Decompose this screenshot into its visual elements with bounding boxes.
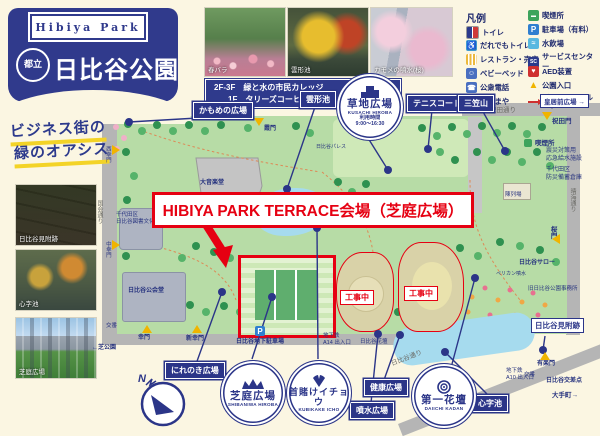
label-harumi-dori: 晴海通り bbox=[568, 188, 577, 212]
label-koban-east: 交番 bbox=[524, 372, 535, 379]
label-kitsuenjo: 喫煙所 bbox=[535, 140, 555, 148]
circle-shibaniwa-hiroba: 芝庭広場 SHIBANIWA HIROBA bbox=[220, 360, 286, 426]
circle-kusachi-hiroba: 草地広場 KUSACHI HIROBA 利用時間 9:00～16:30 bbox=[336, 73, 404, 141]
label-kokkai-dori: 国会通り bbox=[95, 200, 104, 224]
nishisaiwaimon-gate-icon bbox=[112, 145, 120, 155]
drinking-water-icon: ≈ bbox=[528, 38, 539, 49]
parking-icon: P bbox=[528, 24, 539, 35]
toilet-icon bbox=[466, 26, 479, 39]
shinsaiwaimon-gate-icon bbox=[192, 325, 202, 333]
photo-shibaniwa-hiroba: 芝庭広場 bbox=[16, 318, 96, 378]
circle-daiichi-kadan: 第一花壇 DAIICHI KADAN bbox=[411, 363, 477, 429]
label-hibiya-kosaten: 日比谷交差点 bbox=[546, 378, 582, 386]
circle-kubikake-icho: 首賭けイチョウ KUBIKAKE ICHO bbox=[286, 360, 352, 426]
label-kenko-hiroba: 健康広場 bbox=[364, 379, 408, 396]
compass-n: N bbox=[138, 373, 147, 385]
legend-smoking: ▬喫煙所 bbox=[528, 10, 564, 21]
label-kumogata-ike: 雲形池 bbox=[300, 91, 336, 108]
kokaido-building bbox=[122, 272, 186, 322]
label-kyu-jimusho: 旧日比谷公園事務所 bbox=[528, 286, 578, 293]
harumi-dori-road bbox=[566, 103, 580, 335]
label-chinretsujo: 陳列場 bbox=[505, 192, 522, 199]
toritsu-seal: 都立 bbox=[16, 48, 50, 82]
photo-spring-roses: 春バラ bbox=[205, 8, 285, 76]
event-title: HIBIYA PARK TERRACE会場（芝庭広場） bbox=[163, 199, 464, 221]
label-mitsuke-ato: 日比谷見附跡 bbox=[531, 318, 584, 333]
label-nirenoki-hiroba: にれのき広場 bbox=[165, 362, 225, 379]
label-mikasa-yama: 三笠山 bbox=[458, 95, 494, 112]
label-yurakumon: 有楽門 bbox=[537, 361, 555, 369]
sakuramon-gate-icon bbox=[552, 234, 560, 244]
kasumimon-gate-icon bbox=[254, 118, 264, 126]
ginkgo-leaf-icon bbox=[311, 374, 327, 387]
photo-kamome-fountain: カモメの噴水(桜) bbox=[371, 8, 452, 76]
legend-parking: P駐車場（有料） bbox=[528, 24, 593, 35]
public-phone-icon: ☎ bbox=[466, 82, 477, 93]
photo-kumogata-pond: 雲形池 bbox=[288, 8, 368, 76]
construction-label-2: 工事中 bbox=[404, 286, 438, 301]
park-title: 日比谷公園 bbox=[54, 50, 179, 85]
label-kokyo-hiroba: 皇居前広場 → bbox=[540, 94, 589, 108]
crown-icon bbox=[241, 378, 265, 390]
photo-mitsuke-ruins: 日比谷見附跡 bbox=[16, 185, 96, 245]
label-nishisaiwaimon: 西幸門 bbox=[104, 146, 111, 163]
legend-entrance: ▲公園入口 bbox=[528, 80, 571, 91]
label-funsui-hiroba: 噴水広場 bbox=[350, 402, 394, 419]
slogan-line2: 緑のオアシス bbox=[13, 138, 110, 169]
ribbon-banner: Hibiya Park bbox=[30, 14, 146, 40]
legend-aed: ♥AED装置 bbox=[528, 66, 572, 77]
aed-icon: ♥ bbox=[528, 66, 539, 77]
restaurant-icon bbox=[466, 54, 477, 65]
label-hibiya-saroh: 日比谷サロー bbox=[519, 260, 555, 268]
legend-phone: ☎公衆電話 bbox=[466, 82, 509, 93]
compass-icon bbox=[142, 379, 184, 425]
label-shibakoen: ←芝公園 bbox=[92, 345, 116, 353]
label-hibiya-kadan-shop: 日比谷花壇 bbox=[360, 339, 388, 346]
accessible-toilet-icon: ♿ bbox=[466, 40, 477, 51]
lawn-court bbox=[255, 270, 317, 320]
label-pelican-fountain: ペリカン噴水 bbox=[496, 271, 526, 277]
label-shinji-ike: 心字池 bbox=[472, 395, 508, 412]
rose-icon bbox=[437, 380, 451, 394]
smoking-spot-icon bbox=[524, 139, 532, 147]
legend-toilet: トイレ bbox=[466, 26, 504, 39]
label-saiwaimon: 幸門 bbox=[138, 335, 150, 343]
barrier-free-icon bbox=[528, 101, 539, 103]
yurakumon-gate-icon bbox=[540, 352, 550, 360]
label-a14: 地下鉄A14 出入口 bbox=[323, 333, 351, 347]
baby-bed-icon: ☺ bbox=[466, 68, 477, 79]
legend-accessible-toilet: ♿だれでもトイレ bbox=[466, 40, 531, 51]
label-hibiya-palace: 日比谷パレス bbox=[316, 144, 346, 150]
building-icon bbox=[361, 86, 379, 98]
nakasaiwaimon-gate-icon bbox=[112, 240, 120, 250]
event-title-box: HIBIYA PARK TERRACE会場（芝庭広場） bbox=[152, 192, 474, 228]
label-chika-parking: 日比谷地下駐車場 bbox=[236, 339, 284, 347]
label-kasumimon: 霞門 bbox=[264, 126, 276, 134]
legend-water: ≈水飲場 bbox=[528, 38, 564, 49]
park-entrance-icon: ▲ bbox=[528, 80, 539, 91]
legend-baby-bed: ☺ベビーベッド bbox=[466, 68, 524, 79]
label-nakasaiwaimon: 中幸門 bbox=[104, 241, 111, 258]
photo-shinji-pond: 心字池 bbox=[16, 250, 96, 310]
label-shinsai: 震災対策用応急給水施設 bbox=[546, 148, 582, 163]
label-daionogakudo: 大音楽堂 bbox=[200, 180, 224, 188]
legend-title: 凡例 bbox=[466, 10, 486, 25]
label-kokaido: 日比谷公会堂 bbox=[128, 288, 164, 296]
label-otemachi: 大手町→ bbox=[552, 392, 578, 400]
shibaniwa-field-outline bbox=[238, 255, 336, 338]
saiwaimon-gate-icon bbox=[142, 325, 152, 333]
construction-label-1: 工事中 bbox=[340, 290, 374, 305]
iwaidamon-gate-icon bbox=[542, 112, 552, 120]
label-kamome-hiroba: かもめの広場 bbox=[193, 102, 253, 119]
label-shinsaiwaimon: 新幸門 bbox=[186, 336, 204, 344]
smoking-icon: ▬ bbox=[528, 10, 539, 21]
label-bosai: 千代田区防災備蓄倉庫 bbox=[546, 167, 582, 182]
label-iwaida-mon: 祝田門 bbox=[552, 118, 572, 126]
parking-map-icon: P bbox=[255, 326, 265, 336]
label-koban-west: 交番 bbox=[106, 323, 117, 330]
ribbon-text: Hibiya Park bbox=[35, 21, 140, 34]
hibiya-park-map-poster: { "colors":{"navy":"#2b3588","red":"#e60… bbox=[0, 0, 600, 431]
